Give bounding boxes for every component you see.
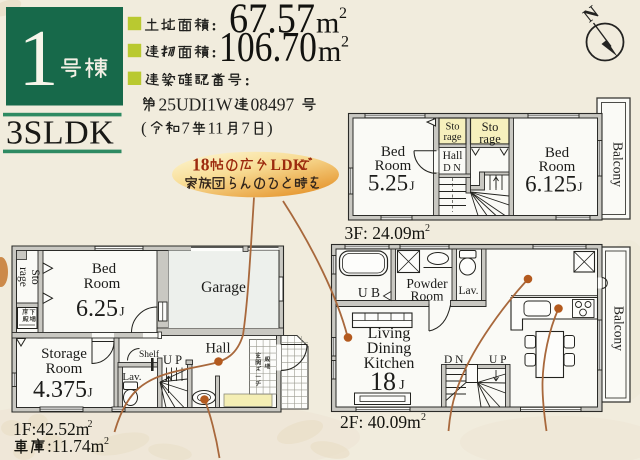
svg-text:U B: U B bbox=[358, 285, 380, 300]
svg-text:4.375: 4.375 bbox=[33, 377, 87, 403]
svg-text:2: 2 bbox=[341, 34, 349, 51]
svg-text::: : bbox=[245, 73, 250, 90]
svg-text:Hall: Hall bbox=[206, 341, 231, 357]
svg-text:rage: rage bbox=[443, 132, 461, 143]
svg-text:11: 11 bbox=[208, 119, 224, 138]
svg-text:Storage: Storage bbox=[41, 346, 87, 362]
svg-text:2: 2 bbox=[104, 436, 109, 447]
svg-text:25UDI1W: 25UDI1W bbox=[159, 95, 233, 115]
svg-text:(: ( bbox=[141, 119, 147, 138]
svg-text:U P: U P bbox=[163, 353, 182, 367]
svg-text:6.25: 6.25 bbox=[76, 296, 118, 322]
svg-text:J: J bbox=[409, 178, 414, 193]
svg-text:m: m bbox=[318, 35, 341, 68]
svg-text:2: 2 bbox=[339, 5, 347, 22]
svg-text:18: 18 bbox=[370, 367, 396, 396]
svg-text:D N: D N bbox=[443, 163, 461, 174]
svg-text:Balcony: Balcony bbox=[612, 306, 627, 351]
svg-text:08497: 08497 bbox=[251, 95, 295, 115]
svg-text:J: J bbox=[399, 378, 405, 393]
svg-text:J: J bbox=[119, 304, 124, 319]
svg-text:J: J bbox=[577, 179, 582, 194]
svg-text:rage: rage bbox=[17, 267, 29, 287]
svg-text:18: 18 bbox=[192, 155, 210, 175]
svg-text:Bed: Bed bbox=[92, 261, 117, 277]
svg-text:Sto: Sto bbox=[29, 269, 41, 285]
svg-text:Garage: Garage bbox=[201, 279, 246, 296]
svg-text:Lav.: Lav. bbox=[458, 285, 478, 297]
svg-text::: : bbox=[211, 45, 216, 62]
svg-text:Shelf: Shelf bbox=[139, 349, 160, 360]
svg-text:Hall: Hall bbox=[443, 150, 463, 162]
svg-text:): ) bbox=[267, 119, 273, 138]
svg-text:2F: 40.09m: 2F: 40.09m bbox=[340, 412, 421, 432]
svg-text:Sto: Sto bbox=[445, 122, 459, 133]
svg-text:7: 7 bbox=[182, 119, 190, 138]
svg-text:Lav.: Lav. bbox=[122, 371, 141, 383]
svg-text:rage: rage bbox=[479, 132, 501, 146]
svg-text:1: 1 bbox=[19, 15, 59, 103]
svg-text:U P: U P bbox=[489, 354, 507, 366]
svg-text:3F: 24.09m: 3F: 24.09m bbox=[345, 223, 426, 243]
svg-text:D N: D N bbox=[444, 354, 464, 366]
svg-text:3SLDK: 3SLDK bbox=[6, 115, 114, 152]
svg-text::11.74m: :11.74m bbox=[47, 436, 105, 456]
svg-text:Room: Room bbox=[46, 361, 83, 377]
svg-text:2: 2 bbox=[88, 419, 93, 430]
svg-text:7: 7 bbox=[242, 119, 250, 138]
svg-text:5.25: 5.25 bbox=[368, 171, 408, 196]
svg-text:2: 2 bbox=[425, 223, 430, 234]
svg-text:6.125: 6.125 bbox=[525, 172, 577, 197]
svg-text:Room: Room bbox=[84, 276, 121, 292]
svg-text:Room: Room bbox=[410, 289, 444, 304]
svg-text::: : bbox=[211, 18, 216, 35]
svg-text:106.70: 106.70 bbox=[219, 25, 317, 71]
svg-text:J: J bbox=[87, 385, 92, 400]
svg-text:Balcony: Balcony bbox=[611, 142, 626, 187]
svg-text:2: 2 bbox=[421, 412, 426, 423]
svg-text:LDK: LDK bbox=[271, 157, 306, 174]
